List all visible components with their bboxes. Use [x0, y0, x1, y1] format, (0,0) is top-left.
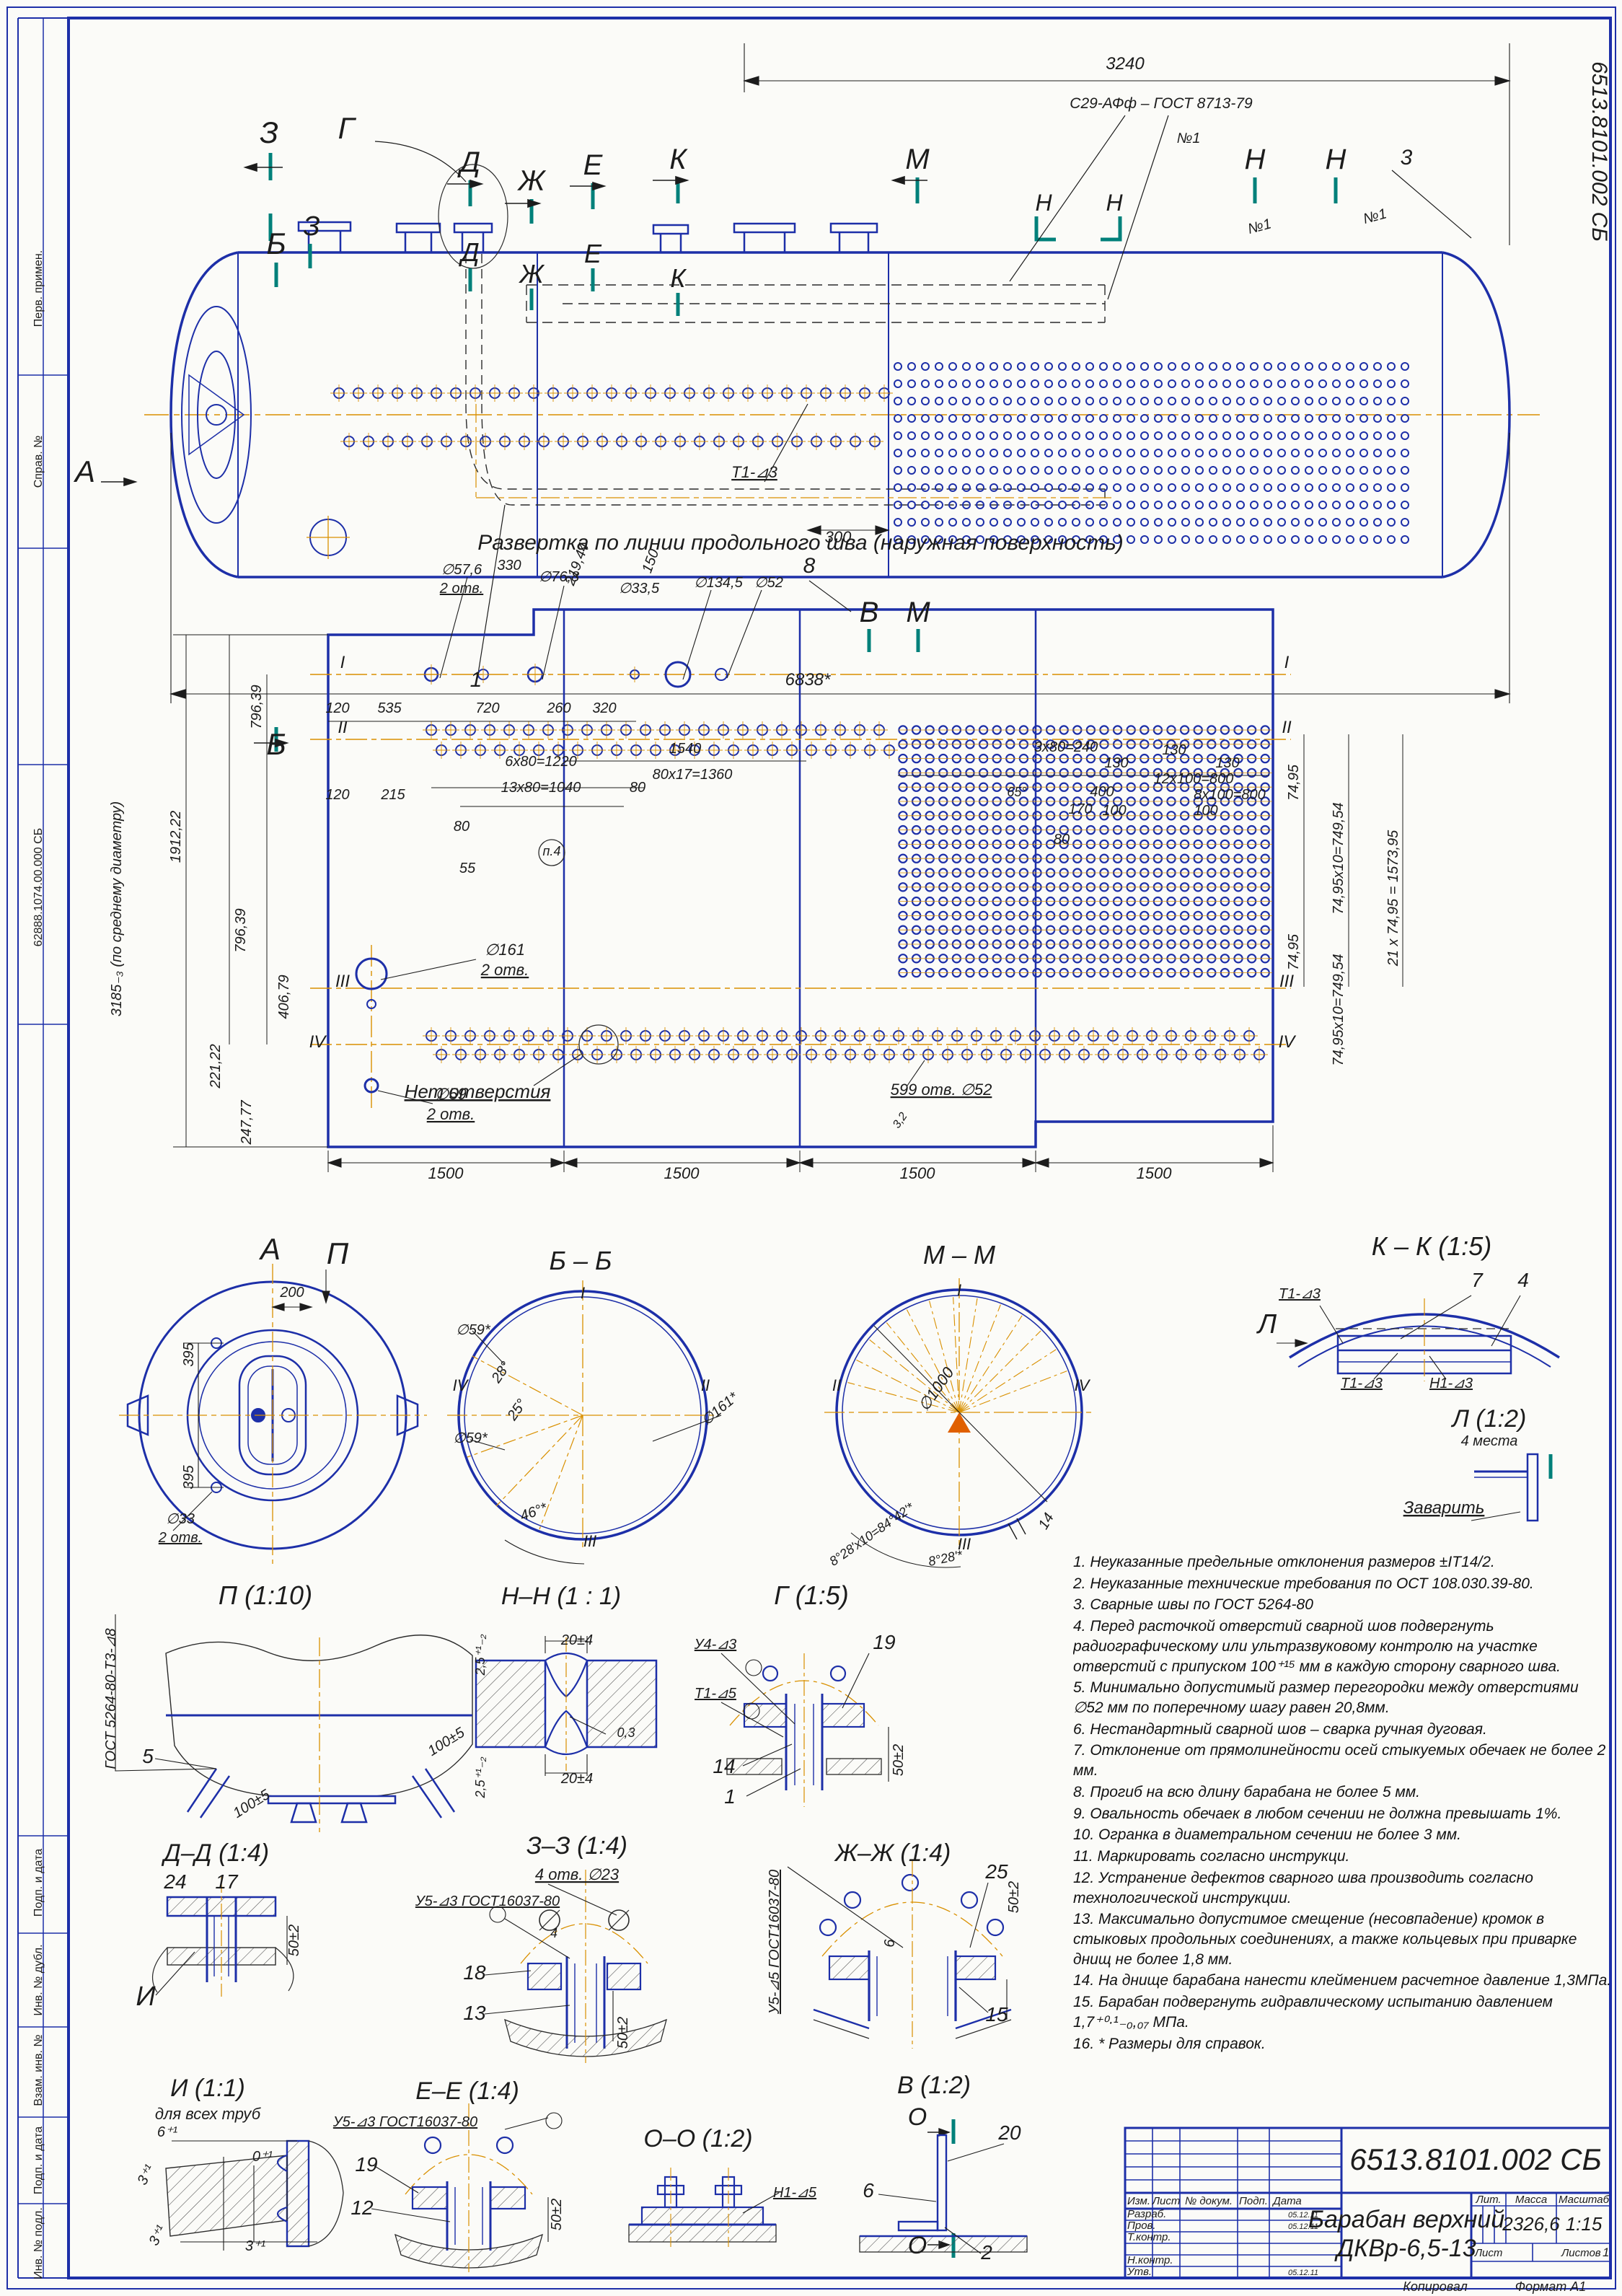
drawing-label: 3,2	[891, 1110, 910, 1130]
drawing-label: II	[832, 1376, 841, 1394]
drawing-label: IV	[1279, 1032, 1297, 1052]
drawing-label: ∅59*	[456, 1322, 491, 1338]
tb-listov: Листов	[1561, 2247, 1601, 2259]
drawing-label: 74,95	[1286, 764, 1302, 801]
drawing-label: 8°28'х10=84°42'*	[827, 1500, 917, 1569]
drawing-label: 1500	[428, 1164, 464, 1182]
tb-listov-value: 1	[1603, 2246, 1609, 2259]
drawing-label: ∅161	[485, 941, 525, 959]
tb-scale-value: 1:15	[1566, 2213, 1603, 2235]
drawing-label: 8x100=800	[1194, 787, 1266, 803]
drawing-label: П	[327, 1236, 349, 1270]
drawing-label: 5	[142, 1745, 154, 1767]
tb-col-data: Дата	[1271, 2195, 1302, 2207]
drawing-label: 15	[985, 2003, 1008, 2026]
drawing-label: Н–Н (1 : 1)	[501, 1583, 621, 1610]
development-holes	[421, 664, 1272, 1063]
drawing-label: IV	[309, 1032, 327, 1052]
tb-col-izm: Изм.	[1127, 2195, 1150, 2207]
section-K-K	[1277, 1296, 1559, 1381]
drawing-label: О	[908, 2103, 927, 2131]
drawing-label: 6x80=1220	[505, 754, 577, 770]
tb-format: Формат А1	[1515, 2279, 1587, 2294]
drawing-label: 1500	[1137, 1164, 1173, 1182]
drawing-label: В (1:2)	[897, 2072, 971, 2099]
drawing-label: Ж–Ж (1:4)	[834, 1839, 951, 1867]
drawing-label: 50±2	[286, 1925, 302, 1956]
drawing-label: 395	[181, 1342, 197, 1366]
drawing-label: 17	[215, 1870, 239, 1893]
drawing-label: С29-АФф – ГОСТ 8713-79	[1070, 95, 1253, 112]
drawing-label: III	[1279, 972, 1294, 991]
drawing-label: И	[136, 1981, 156, 2012]
margin-stamp: Справ. №	[32, 436, 45, 488]
drawing-label: 80	[454, 819, 470, 835]
section-M-M	[824, 1278, 1095, 1567]
drawing-label: 50±2	[891, 1744, 907, 1776]
drawing-label: ГОСТ 5264-80-Т3-⊿8	[103, 1628, 119, 1769]
drawing-label: 65°	[1007, 785, 1026, 799]
drawing-label: 720	[475, 700, 499, 716]
drawing-label: ∅57,6	[441, 562, 482, 578]
drawing-label: Е	[583, 149, 604, 181]
drawing-label: 330	[497, 558, 521, 573]
drawing-label: 3185₋₃ (по среднему диаметру)	[109, 801, 125, 1016]
drawing-label: 1912,22	[168, 811, 184, 863]
drawing-label: К – К (1:5)	[1372, 1231, 1491, 1261]
drawing-label: 4	[550, 1926, 557, 1940]
drawing-label: 1500	[664, 1164, 700, 1182]
drawing-label: 120	[325, 787, 349, 803]
drawing-label: III	[958, 1535, 971, 1553]
drawing-label: 247,77	[239, 1100, 255, 1145]
drawing-label: I	[957, 1281, 961, 1299]
drawing-label: П (1:10)	[219, 1580, 312, 1610]
drawing-label: 74,95	[1286, 933, 1302, 970]
drawing-label: 130	[1104, 755, 1128, 771]
drawing-label: 130	[1215, 755, 1239, 771]
drawing-label: №1	[1362, 206, 1388, 227]
tb-massa-value: 2326,6	[1502, 2213, 1560, 2235]
drawing-label: У5-⊿5 ГОСТ16037-80	[767, 1870, 783, 2015]
drawing-label: 28°	[488, 1359, 514, 1386]
drawing-label: 100±5	[425, 1724, 467, 1759]
drawing-label: 6⁺¹	[157, 2124, 178, 2140]
drawing-label: 1	[470, 668, 482, 692]
drawing-label: 535	[377, 700, 402, 716]
drawing-label: ∅1000	[914, 1363, 958, 1415]
margin-stamp: Взам. инв. №	[32, 2034, 45, 2106]
drawing-label: 0,3	[617, 1725, 635, 1740]
title-block: Изм. Лист № докум. Подп. Дата Разраб. Пр…	[1125, 2128, 1610, 2294]
drawing-label: У5-⊿3 ГОСТ16037-80	[332, 2114, 477, 2130]
drawing-label: Н1-⊿5	[773, 2185, 817, 2201]
drawing-label: Т1-⊿3	[731, 463, 777, 481]
drawing-label: 6838*	[785, 670, 831, 690]
drawing-label: 1500	[900, 1164, 936, 1182]
drawing-label: Ж	[518, 259, 545, 289]
drawing-label: 46°*	[518, 1500, 550, 1524]
drawing-label: 74,95x10=749,54	[1331, 802, 1346, 914]
tb-date3: 05.12.11	[1288, 2269, 1318, 2277]
drawing-label: II	[1282, 718, 1292, 737]
drawing-label: Н	[1245, 144, 1266, 175]
drawing-label: 13x80=1040	[501, 780, 581, 796]
tb-lit: Лит.	[1475, 2194, 1501, 2206]
drawing-label: Т1-⊿3	[1279, 1286, 1321, 1302]
drawing-label: 7	[1471, 1269, 1484, 1291]
drawing-label: III	[335, 972, 350, 991]
tb-col-ndoc: № докум.	[1185, 2195, 1233, 2207]
drawing-label: Г (1:5)	[774, 1580, 849, 1610]
drawing-label: для всех труб	[155, 2105, 262, 2123]
drawing-label: 395	[181, 1464, 197, 1489]
drawing-label: 215	[380, 787, 405, 803]
drawing-label: 100	[1194, 803, 1217, 819]
drawing-label: 50±2	[1006, 1881, 1022, 1913]
tb-name2: ДКВр-6,5-13	[1334, 2235, 1476, 2262]
tb-doc-number: 6513.8101.002 СБ	[1349, 2142, 1602, 2176]
drum-side-view	[101, 43, 1540, 752]
drawing-label: В	[860, 597, 879, 628]
drawing-label: 1540	[669, 741, 702, 757]
drawing-label: №1	[1246, 216, 1273, 237]
view-A	[119, 1264, 427, 1564]
drawing-label: 2 отв.	[439, 581, 483, 597]
drawing-label: ∅134,5	[694, 575, 743, 591]
drawing-label: 3⁺¹	[245, 2238, 266, 2254]
tb-razrab: Разраб.	[1127, 2208, 1166, 2220]
drawing-label: 3⁺¹	[146, 2222, 169, 2248]
drawing-label: 74,95x10=749,54	[1331, 954, 1346, 1065]
drawing-label: 100±5	[230, 1786, 273, 1821]
drawing-label: Е	[584, 239, 602, 268]
drawing-label: I	[581, 1284, 585, 1302]
drawing-label: Нет отверстия	[405, 1081, 551, 1102]
drawing-label: 12x100=800	[1154, 771, 1234, 787]
tb-list: Лист	[1474, 2247, 1503, 2259]
drawing-label: 19	[355, 2153, 377, 2176]
note-item: 14. На днище барабана нанести клеймением…	[1073, 1971, 1613, 1991]
tb-nkontr: Н.контр.	[1127, 2254, 1173, 2266]
drawing-label: О	[908, 2232, 927, 2259]
drawing-label: М – М	[923, 1240, 995, 1270]
note-item: 11. Маркировать согласно инструкци.	[1073, 1847, 1613, 1867]
drawing-label: II	[701, 1376, 710, 1394]
drawing-label: 130	[1162, 742, 1186, 758]
drawing-label: Т1-⊿3	[1341, 1376, 1383, 1391]
drawing-label: Ж	[517, 165, 547, 197]
drawing-label: I	[1284, 653, 1290, 672]
drawing-label: 170	[1068, 801, 1092, 817]
drawing-label: 25°	[504, 1396, 530, 1424]
technical-notes: 1. Неуказанные предельные отклонения раз…	[1073, 1552, 1613, 2122]
margin-stamp: Инв. № дубл.	[32, 1944, 45, 2015]
drawing-label: 400	[1090, 784, 1114, 800]
drawing-label: Н1-⊿3	[1429, 1376, 1473, 1391]
drawing-label: Г	[338, 111, 357, 145]
drawing-label: Д–Д (1:4)	[161, 1839, 269, 1867]
margin-stamp: Подп. и дата	[32, 2126, 45, 2194]
drawing-label: Д	[457, 146, 480, 178]
drawing-label: 50±2	[549, 2199, 565, 2230]
drawing-label: 18	[463, 1961, 486, 1984]
drawing-label: Заварить	[1403, 1498, 1485, 1518]
corner-doc-number: 6513.8101.002 СБ	[1587, 61, 1611, 242]
margin-stamp: Подп. и дата	[32, 1849, 45, 1917]
drawing-label: 2 отв.	[426, 1105, 475, 1123]
drawing-label: 2 отв.	[480, 961, 529, 979]
tb-tkontr: Т.контр.	[1127, 2231, 1171, 2243]
drawing-label: 4	[1517, 1269, 1529, 1291]
drawing-label: 2,5⁺¹₋₂	[473, 1634, 488, 1676]
drawing-label: 6	[882, 1939, 898, 1948]
drawing-label: Л	[1256, 1309, 1277, 1340]
section-N-N	[476, 1636, 656, 1776]
note-item: 12. Устранение дефектов сварного шва про…	[1073, 1868, 1613, 1908]
drawing-label: 12	[351, 2196, 374, 2219]
drawing-label: 200	[279, 1285, 304, 1301]
note-item: 16. * Размеры для справок.	[1073, 2034, 1613, 2054]
tb-prov: Пров.	[1127, 2220, 1156, 2232]
drawing-label: Н	[1035, 190, 1052, 216]
drawing-label: О–О (1:2)	[643, 2125, 752, 2152]
drawing-label: М	[906, 597, 930, 628]
drawing-label: 19	[873, 1631, 895, 1653]
note-item: 6. Нестандартный сварной шов – сварка ру…	[1073, 1720, 1613, 1740]
drawing-label: Н	[1106, 190, 1123, 216]
drawing-label: Д	[458, 237, 479, 267]
drawing-label: 260	[546, 700, 570, 716]
margin-stamp: Перв. примен.	[32, 250, 45, 327]
drawing-label: 406,79	[276, 975, 292, 1019]
drawing-label: З–З (1:4)	[526, 1832, 627, 1860]
drawing-label: А	[258, 1232, 281, 1266]
drawing-label: 20±4	[560, 1771, 593, 1787]
section-D-D	[153, 1877, 294, 1997]
drawing-label: 320	[592, 700, 616, 716]
drawing-label: З	[303, 211, 319, 242]
drawing-label: 599 отв. ∅52	[891, 1081, 992, 1099]
tb-copied: Копировал	[1403, 2279, 1468, 2294]
note-item: 9. Овальность обечаек в любом сечении не…	[1073, 1804, 1613, 1824]
drawing-label: ∅33	[166, 1511, 195, 1527]
drawing-label: Н	[1326, 144, 1346, 175]
note-item: 1. Неуказанные предельные отклонения раз…	[1073, 1552, 1613, 1573]
drawing-label: К	[669, 144, 688, 175]
drawing-label: ∅59*	[453, 1430, 488, 1446]
drawing-label: 13	[463, 2002, 486, 2024]
drawing-label: 21 x 74,95 = 1573,95	[1385, 830, 1401, 967]
drawing-label: IV	[453, 1376, 470, 1394]
drawing-label: 796,39	[249, 685, 265, 729]
note-item: 7. Отклонение от прямолинейности осей ст…	[1073, 1741, 1613, 1780]
drawing-label: 80	[630, 780, 645, 796]
drawing-label: II	[338, 718, 348, 737]
section-ZH-ZH	[788, 1861, 1011, 2049]
drawing-label: п.4	[543, 844, 561, 858]
tb-name1: Барабан верхний	[1308, 2206, 1504, 2233]
drawing-label: 3	[1401, 146, 1413, 170]
development-title: Развертка по линии продольного шва (нару…	[477, 531, 1124, 555]
drawing-label: ∅52	[754, 575, 783, 591]
drawing-label: Л (1:2)	[1451, 1405, 1527, 1433]
drawing-label: 3⁺¹	[134, 2162, 158, 2188]
note-item: 4. Перед расточкой отверстий сварной шов…	[1073, 1617, 1613, 1676]
drum-tube-holes	[330, 363, 1409, 543]
drawing-label: 1	[724, 1785, 736, 1808]
note-item: 3. Сварные швы по ГОСТ 5264-80	[1073, 1595, 1613, 1615]
tb-massa: Масса	[1515, 2194, 1547, 2206]
drawing-label: Е–Е (1:4)	[415, 2077, 519, 2105]
drawing-label: 4 отв. ∅23	[535, 1865, 620, 1883]
drawing-label: 796,39	[233, 908, 249, 952]
tb-masshtab: Масштаб	[1559, 2194, 1610, 2206]
drawing-label: 55	[459, 861, 476, 876]
drawing-label: К	[670, 263, 687, 293]
drawing-sheet: АББЗЗГДДЖЖЕЕККММННННВ3240С29-АФф – ГОСТ …	[0, 0, 1622, 2296]
drawing-label: 2,5⁺¹₋₂	[473, 1756, 488, 1798]
section-O-O	[629, 2168, 779, 2247]
note-item: 10. Огранка в диаметральном сечении не б…	[1073, 1825, 1613, 1845]
note-item: 8. Прогиб на всю длину барабана не более…	[1073, 1782, 1613, 1803]
note-item: 13. Максимально допустимое смещение (нес…	[1073, 1909, 1613, 1969]
drawing-label: З	[260, 115, 278, 149]
note-item: 5. Минимально допустимый размер перегоро…	[1073, 1678, 1613, 1717]
tb-col-list: Лист	[1152, 2195, 1181, 2207]
drawing-label: I	[340, 653, 345, 672]
drawing-label: 80	[1054, 832, 1070, 848]
drawing-label: 120	[325, 700, 349, 716]
drawing-label: У5-⊿3 ГОСТ16037-80	[415, 1893, 560, 1909]
section-G	[721, 1653, 889, 1807]
drawing-label: III	[583, 1532, 596, 1550]
drawing-label: А	[73, 454, 95, 488]
view-P	[115, 1614, 472, 1832]
note-item: 2. Неуказанные технические требования по…	[1073, 1574, 1613, 1594]
development-view	[173, 577, 1403, 1172]
drawing-label: 14	[713, 1755, 735, 1777]
drawing-label: ∅33,5	[619, 581, 660, 597]
drawing-label: 25	[984, 1860, 1008, 1883]
drawing-label: Б – Б	[550, 1246, 612, 1275]
drawing-label: 6	[863, 2179, 874, 2202]
drawing-label: 20	[997, 2121, 1021, 2144]
drawing-label: 100	[1102, 803, 1126, 819]
drawing-label: М	[905, 144, 930, 175]
drawing-label: 14	[1036, 1510, 1057, 1532]
drawing-label: IV	[1075, 1376, 1091, 1394]
drawing-label: 50±2	[615, 2017, 631, 2049]
drawing-label: 24	[163, 1870, 186, 1893]
drawing-label: 80x17=1360	[653, 767, 733, 783]
margin-stamp: 62888.1074.00.000 СБ	[32, 828, 45, 946]
tb-col-podp: Подп.	[1239, 2195, 1268, 2207]
drawing-label: Б	[266, 226, 286, 260]
margin-stamp: Инв. № подл.	[32, 2207, 45, 2279]
drawing-label: 221,22	[208, 1044, 224, 1088]
drawing-label: Б	[266, 727, 286, 761]
tb-utv: Утв.	[1127, 2266, 1152, 2278]
drawing-label: 3x80=240	[1034, 739, 1098, 755]
drawing-label: 8	[803, 554, 816, 578]
drawing-label: Т1-⊿5	[695, 1686, 737, 1702]
drawing-label: 0⁺¹	[252, 2149, 273, 2165]
drawing-label: У4-⊿3	[694, 1637, 736, 1653]
drawing-label: №1	[1177, 131, 1201, 146]
drawing-label: 4 места	[1461, 1433, 1518, 1449]
engineering-drawing: АББЗЗГДДЖЖЕЕККММННННВ3240С29-АФф – ГОСТ …	[0, 0, 1622, 2296]
drawing-label: 2	[980, 2241, 992, 2264]
drawing-label: 20±4	[560, 1632, 593, 1648]
drawing-label: 2 отв.	[158, 1530, 202, 1546]
drawing-label: 3240	[1106, 54, 1145, 74]
note-item: 15. Барабан подвергнуть гидравлическому …	[1073, 1992, 1613, 2032]
drawing-label: И (1:1)	[170, 2075, 245, 2102]
